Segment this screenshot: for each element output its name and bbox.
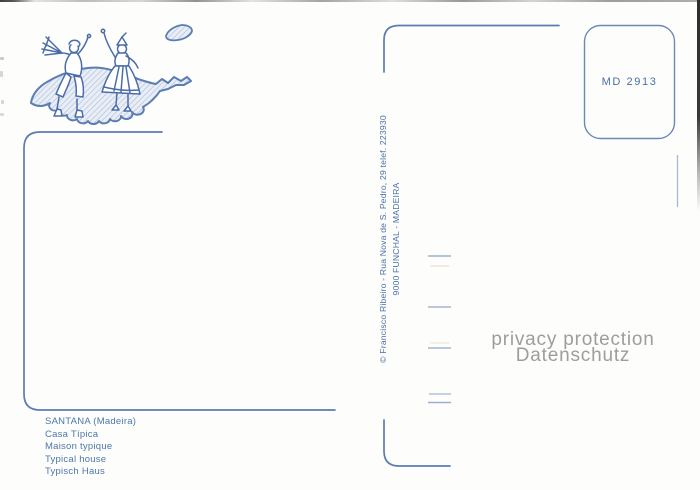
stamp-box-code: MD 2913: [584, 76, 675, 88]
caption-title: SANTANA (Madeira): [45, 416, 136, 429]
address-area-border-top: [384, 26, 559, 73]
caption-line: Casa Típica: [45, 429, 136, 442]
caption-line: Maison typique: [45, 441, 136, 454]
postcard-back: { "card": { "stamp_code": "MD 2913", "pu…: [0, 0, 700, 490]
caption-line: Typisch Haus: [45, 466, 136, 479]
privacy-watermark: privacy protection Datenschutz: [473, 332, 673, 363]
caption-line: Typical house: [45, 454, 136, 467]
publisher-line-1: © Francisco Ribeiro - Rua Nova de S. Ped…: [377, 115, 390, 363]
caption-block: SANTANA (Madeira) Casa Típica Maison typ…: [45, 416, 136, 479]
address-area-border-bottom: [384, 420, 450, 466]
publisher-line-2: 9000 FUNCHAL - MADEIRA: [390, 183, 403, 296]
message-area-border: [24, 132, 335, 410]
publisher-imprint: © Francisco Ribeiro - Rua Nova de S. Ped…: [377, 119, 403, 359]
